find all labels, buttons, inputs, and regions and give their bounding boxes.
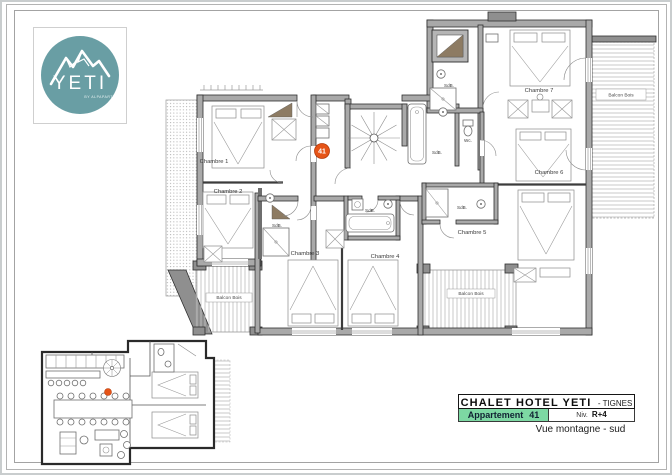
bath-label: SdB. bbox=[444, 83, 454, 88]
bed-icon-chambre-4 bbox=[348, 260, 398, 326]
room-label-chambre-6: Chambre 6 bbox=[535, 170, 564, 176]
apartment-marker-dot bbox=[105, 389, 112, 396]
drawing-sheet: YETI BY ALPAPART bbox=[0, 0, 672, 475]
badge-number: 41 bbox=[318, 149, 326, 156]
level-value: R+4 bbox=[592, 410, 607, 419]
title-block: CHALET HOTEL YETI - TIGNES Appartement41… bbox=[458, 394, 635, 422]
apartment-number: 41 bbox=[529, 410, 539, 420]
room-label-chambre-5: Chambre 5 bbox=[458, 230, 487, 236]
title-row-2: Appartement41 Niv.R+4 bbox=[458, 409, 635, 422]
room-label-chambre-1: Chambre 1 bbox=[200, 159, 229, 165]
railing bbox=[200, 85, 263, 90]
shaft bbox=[432, 30, 468, 62]
room-label-chambre-4: Chambre 4 bbox=[371, 254, 400, 260]
entry-closet bbox=[316, 104, 329, 138]
apartment-label: Appartement bbox=[468, 410, 524, 420]
main-plan: Balcon Bois Balcon Bois Balcon Bois bbox=[166, 12, 656, 335]
spiral-stair-icon bbox=[348, 112, 400, 164]
wc-label: Wc. bbox=[464, 138, 472, 143]
bath-label: SdB. bbox=[457, 205, 467, 210]
apartment-cell: Appartement41 bbox=[459, 409, 549, 421]
level-label: Niv. bbox=[576, 412, 588, 419]
room-label-chambre-7: Chambre 7 bbox=[525, 88, 554, 94]
balcony-bottom-right: Balcon Bois bbox=[417, 264, 518, 334]
balcony-label: Balcon Bois bbox=[216, 295, 242, 301]
balcony-label: Balcon Bois bbox=[608, 93, 634, 99]
bathtub-icon-sdb34 bbox=[346, 214, 394, 232]
balcony-label: Balcon Bois bbox=[458, 291, 484, 297]
view-label: Vue montagne - sud bbox=[518, 424, 643, 435]
bed-icon-chambre-3 bbox=[288, 260, 338, 326]
mini-bed-2 bbox=[152, 412, 198, 438]
bed-icon-chambre-2 bbox=[203, 192, 253, 248]
mini-bed-1 bbox=[152, 372, 198, 398]
room-label-chambre-2: Chambre 2 bbox=[214, 189, 243, 195]
mini-plan bbox=[42, 341, 230, 464]
apartment-number-badge: 41 bbox=[315, 144, 330, 159]
balcony-bottom-left: Balcon Bois bbox=[193, 261, 262, 335]
location-suffix: - TIGNES bbox=[598, 399, 633, 408]
level-cell: Niv.R+4 bbox=[549, 409, 634, 421]
bath-label: SdB. bbox=[365, 208, 375, 213]
bathtub-icon-center bbox=[408, 104, 426, 164]
balcony-right: Balcon Bois bbox=[592, 36, 656, 218]
bed-icon-chambre-5 bbox=[518, 190, 574, 260]
bed-icon-chambre-7 bbox=[510, 30, 570, 86]
toilet-icon bbox=[463, 120, 473, 136]
room-label-chambre-3: Chambre 3 bbox=[291, 251, 320, 257]
bath-label: SdB. bbox=[272, 223, 282, 228]
mini-spiral-stair-icon bbox=[104, 360, 121, 377]
bath-label: SdB. bbox=[432, 150, 442, 155]
title-row: CHALET HOTEL YETI - TIGNES bbox=[458, 394, 635, 409]
hotel-name: CHALET HOTEL YETI bbox=[461, 397, 592, 409]
